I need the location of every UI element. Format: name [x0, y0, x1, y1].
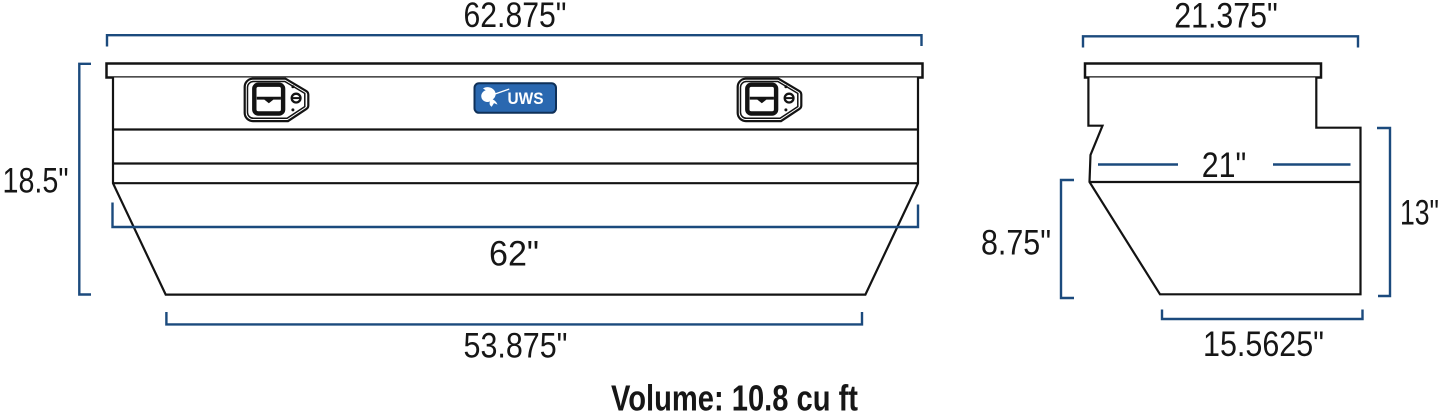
- svg-text:Volume: 10.8 cu ft: Volume: 10.8 cu ft: [611, 378, 858, 417]
- svg-text:62": 62": [489, 235, 539, 274]
- svg-text:8.75": 8.75": [981, 224, 1051, 263]
- svg-text:13": 13": [1400, 194, 1439, 233]
- svg-text:21": 21": [1202, 146, 1247, 185]
- svg-text:18.5": 18.5": [3, 162, 69, 201]
- svg-text:53.875": 53.875": [464, 327, 568, 366]
- svg-text:UWS: UWS: [508, 90, 544, 108]
- svg-text:62.875": 62.875": [464, 0, 567, 35]
- svg-text:21.375": 21.375": [1174, 0, 1278, 36]
- svg-text:15.5625": 15.5625": [1203, 325, 1324, 364]
